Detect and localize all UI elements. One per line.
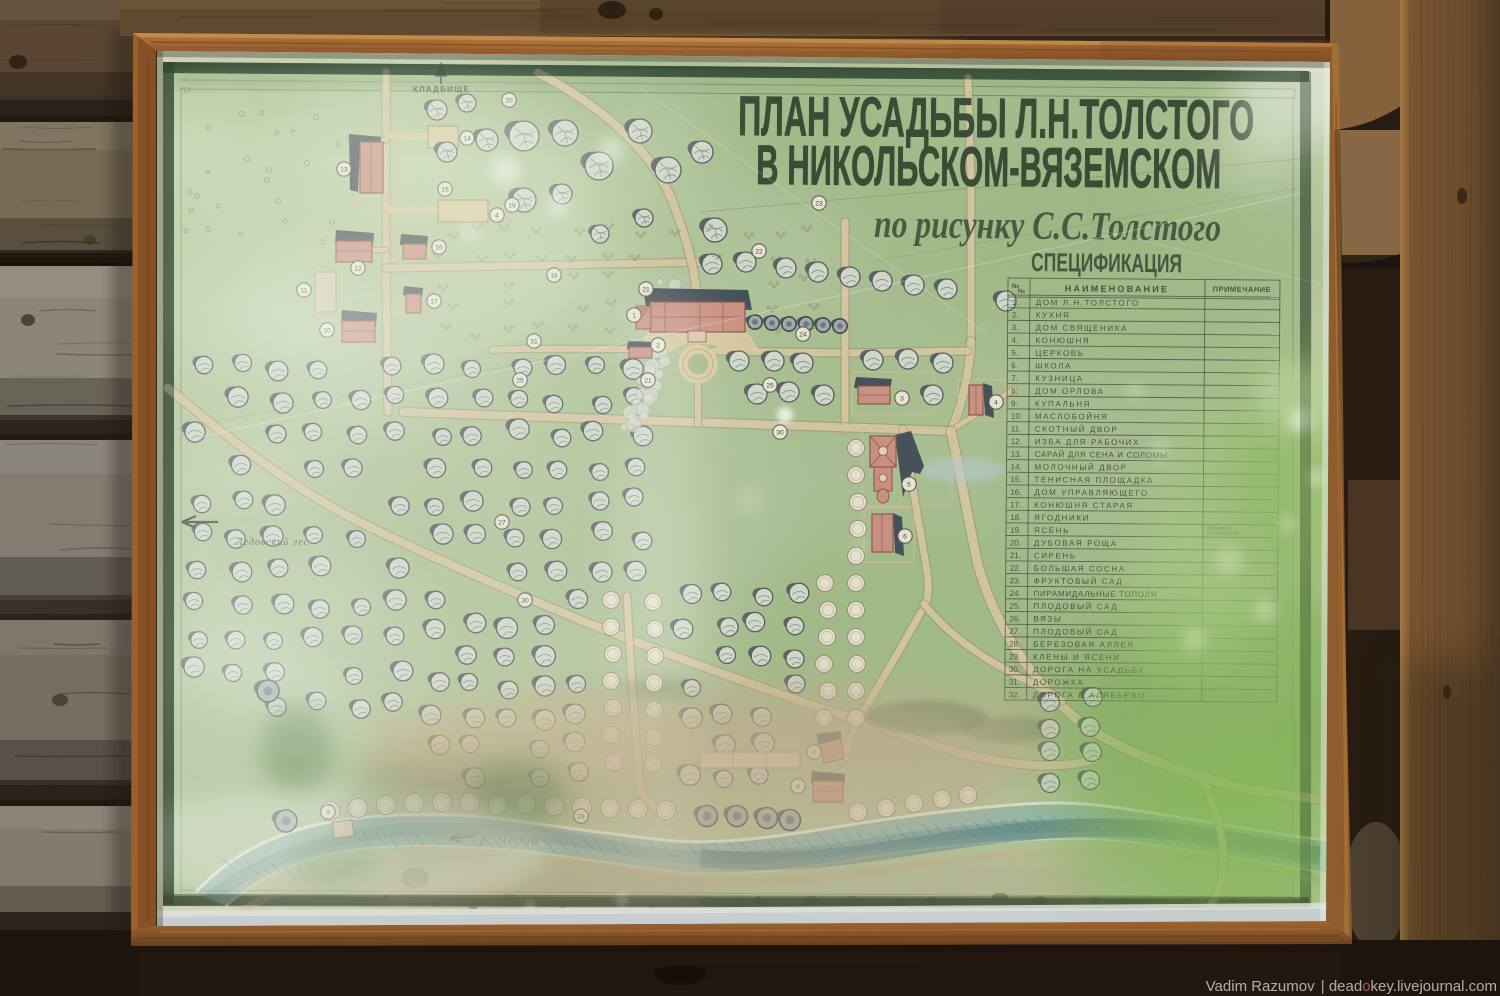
svg-text:Vadim Razumov | deadokey.livej: Vadim Razumov | deadokey.livejournal.com bbox=[1206, 978, 1497, 995]
